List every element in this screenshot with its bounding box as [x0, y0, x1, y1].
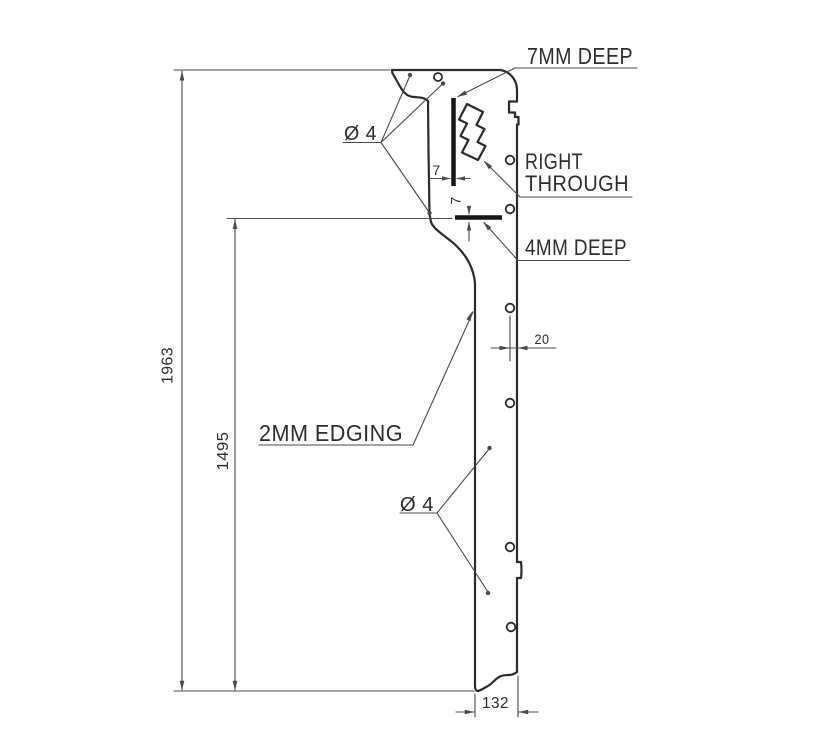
dimension-1963: 1963	[160, 70, 475, 691]
leader-dot	[441, 81, 445, 85]
callout-hole-diameter-bottom: Ø 4	[400, 446, 492, 595]
arrowhead	[467, 206, 471, 215]
arrowhead	[518, 346, 528, 351]
dimension-1495: 1495	[215, 219, 452, 691]
arrowhead	[467, 222, 471, 231]
label-hole-diameter-top: Ø 4	[344, 123, 377, 145]
arrowhead	[180, 681, 185, 691]
hole	[506, 156, 515, 165]
leader-line	[437, 449, 489, 513]
dimension-text-bottom-width: 132	[482, 695, 509, 712]
label-2mm-edging: 2MM EDGING	[259, 420, 403, 446]
dimension-text-overall-height: 1963	[160, 347, 177, 384]
arrowhead	[233, 219, 238, 229]
dimension-text-shoulder-height: 1495	[215, 432, 232, 471]
arrowhead	[518, 710, 528, 715]
leader-dot	[427, 211, 431, 215]
drawing-sheet: 1963 1495 132 20 7 7	[0, 0, 840, 750]
dimension-7-horizontal: 7	[429, 162, 470, 181]
technical-drawing: 1963 1495 132 20 7 7	[0, 0, 840, 750]
through-cutout	[459, 104, 486, 160]
dimension-text-hole-offset: 20	[535, 331, 550, 347]
arrowhead	[233, 681, 238, 691]
dimension-text-groove-offset-h: 7	[432, 162, 440, 178]
leader-dot	[487, 446, 491, 450]
arrowhead	[500, 346, 510, 351]
hole	[506, 205, 515, 214]
callout-4mm-deep: 4MM DEEP	[481, 220, 630, 261]
leader-line	[381, 84, 443, 143]
arrowhead	[456, 176, 465, 180]
dimension-text-groove-offset-v: 7	[448, 196, 464, 204]
hole	[506, 543, 515, 552]
leader-line	[437, 513, 488, 592]
hole	[434, 73, 442, 81]
arrowhead	[442, 176, 451, 180]
leader-dot	[408, 73, 412, 77]
label-7mm-deep: 7MM DEEP	[527, 43, 633, 69]
part-outline	[392, 70, 521, 691]
callout-right-through: RIGHT THROUGH	[482, 149, 632, 197]
leader-line	[413, 312, 473, 445]
hole	[507, 623, 516, 632]
hole	[506, 399, 515, 408]
arrowhead	[465, 710, 475, 715]
leader-line	[458, 68, 515, 97]
dimension-132: 132	[456, 676, 538, 717]
dimension-20: 20	[491, 316, 556, 361]
part-outline-group	[392, 70, 521, 691]
leader-dot	[486, 591, 490, 595]
label-right-through-line2: THROUGH	[525, 171, 629, 196]
leader-line	[381, 143, 429, 213]
arrowhead	[456, 91, 467, 100]
arrowhead	[180, 71, 185, 81]
label-4mm-deep: 4MM DEEP	[525, 235, 627, 260]
hole	[506, 304, 515, 313]
callout-2mm-edging: 2MM EDGING	[259, 310, 475, 446]
label-hole-diameter-bottom: Ø 4	[400, 494, 434, 516]
leader-line	[381, 76, 410, 143]
